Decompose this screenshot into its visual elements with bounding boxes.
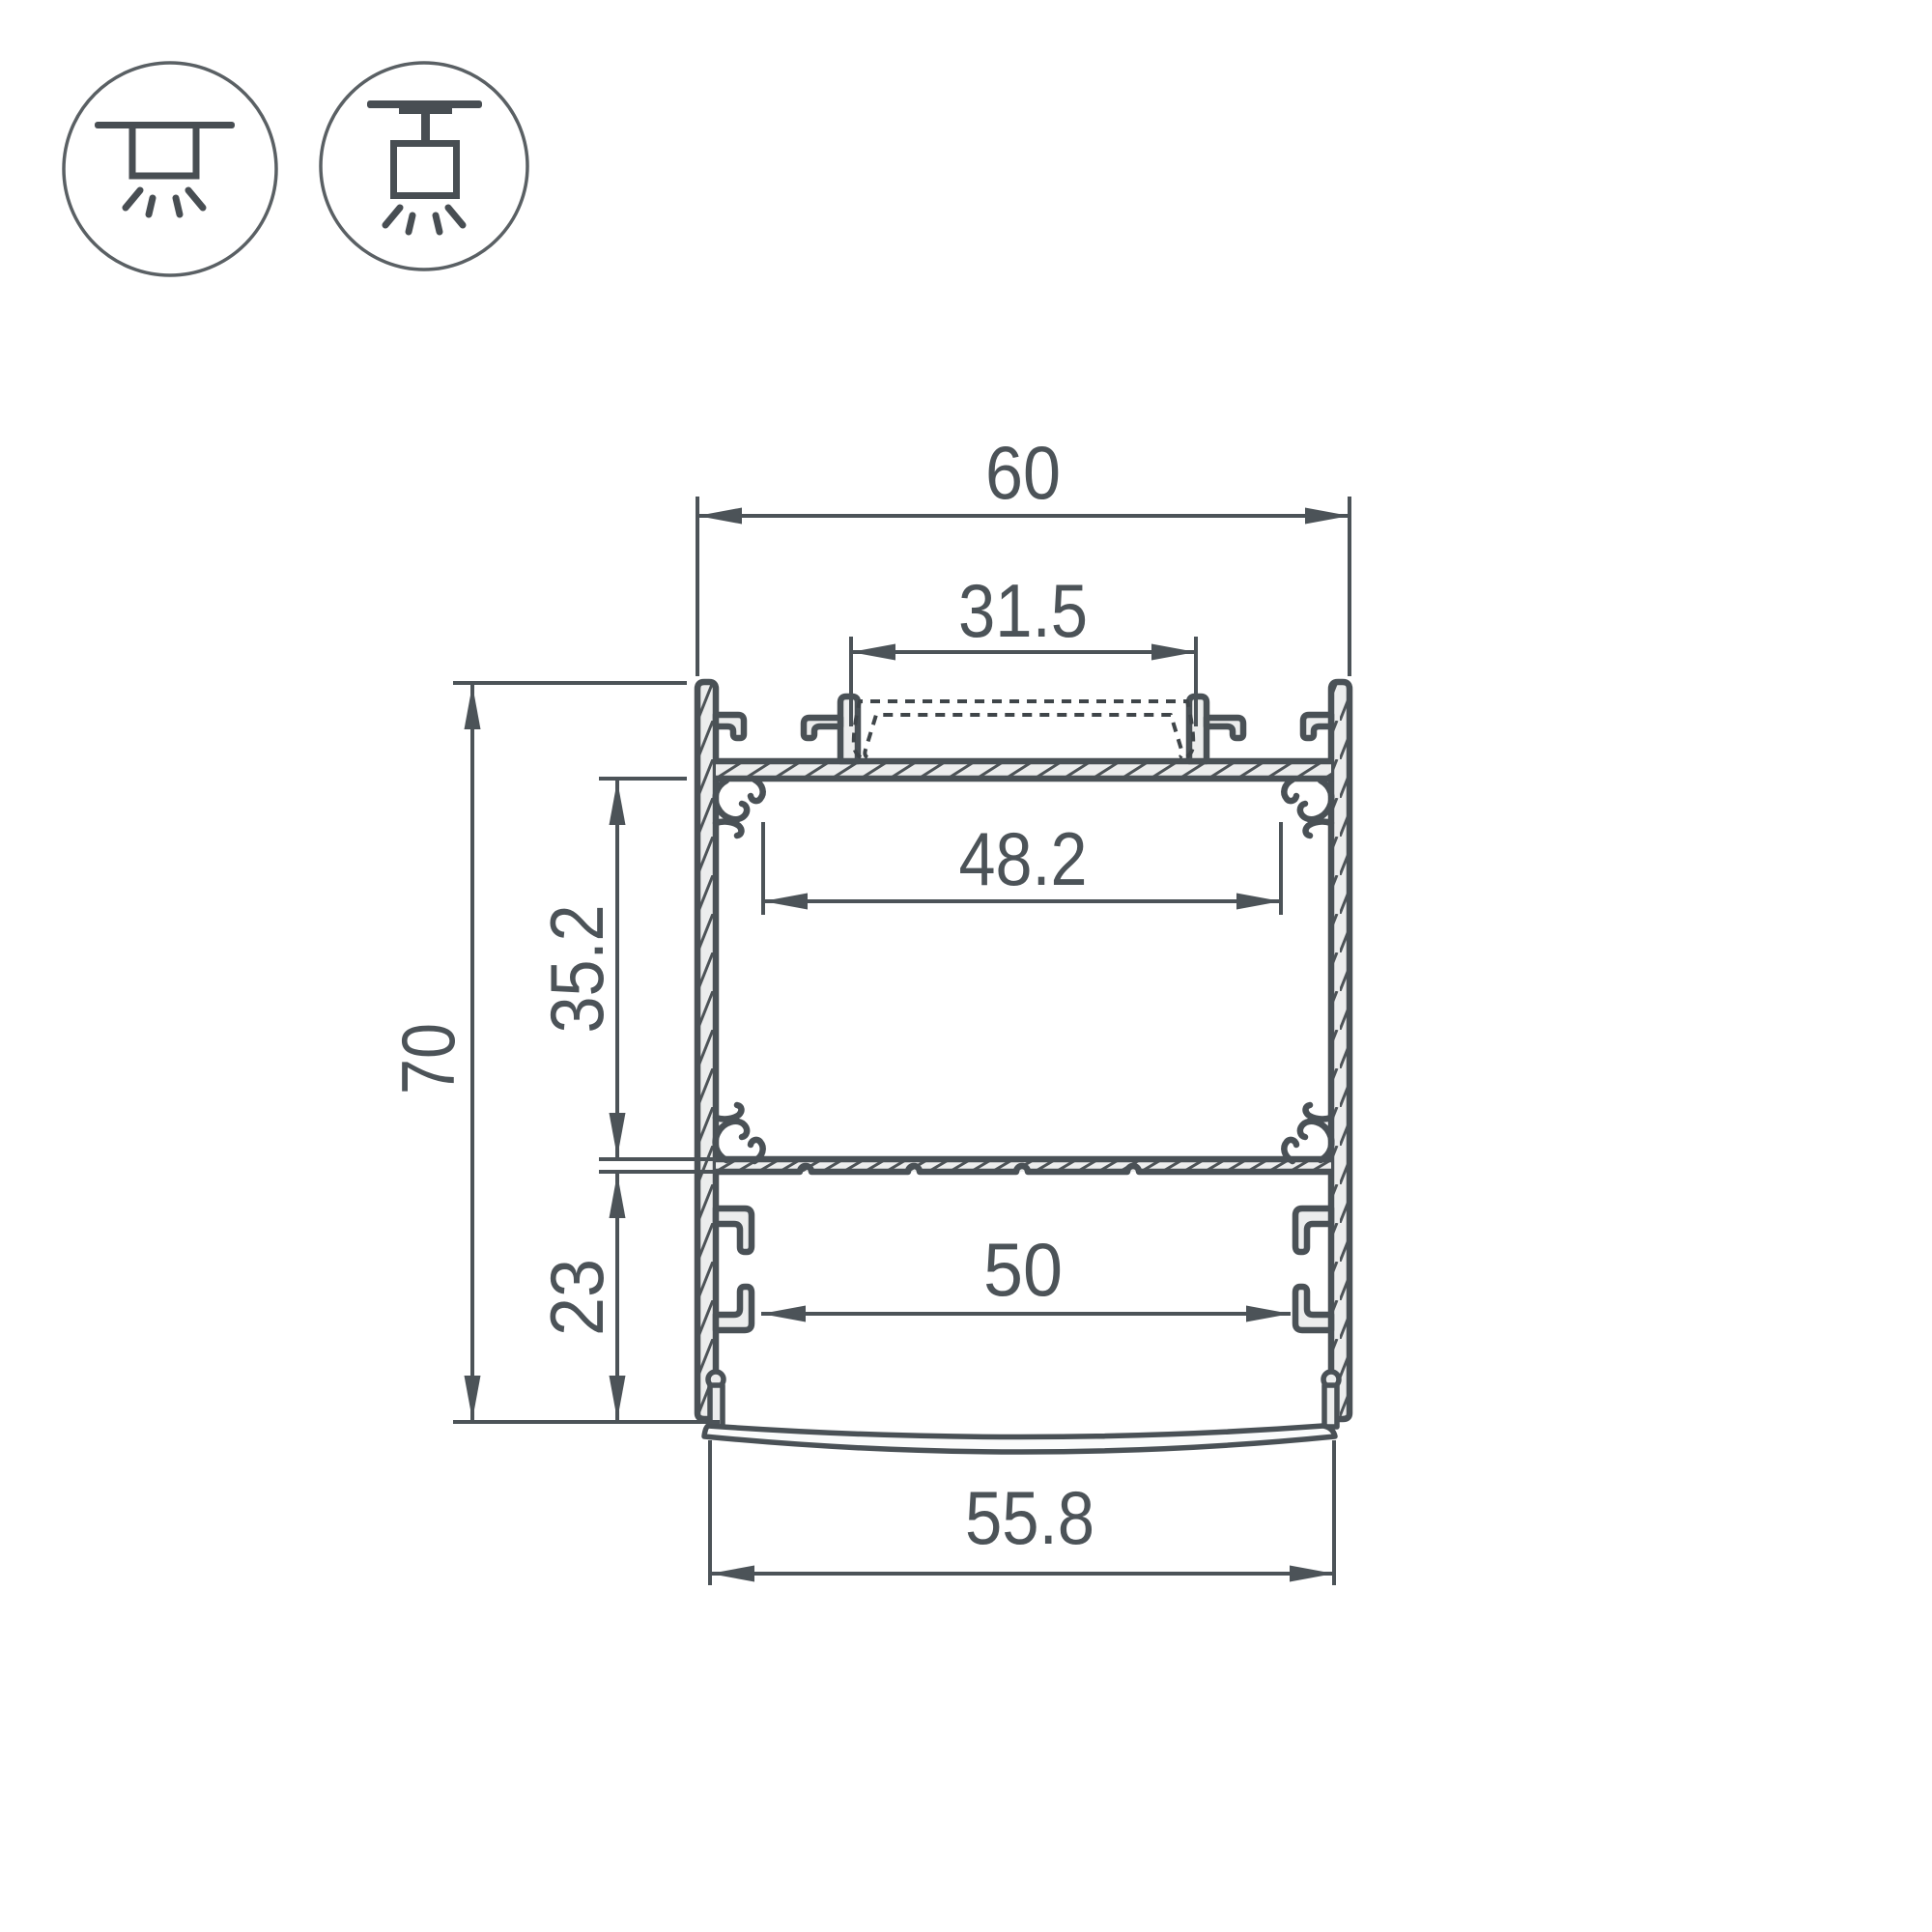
svg-text:35.2: 35.2: [534, 905, 619, 1034]
svg-text:60: 60: [985, 430, 1061, 515]
svg-text:50: 50: [983, 1227, 1063, 1312]
svg-text:55.8: 55.8: [965, 1475, 1094, 1560]
svg-text:31.5: 31.5: [958, 568, 1088, 653]
svg-text:70: 70: [385, 1023, 470, 1094]
svg-text:48.2: 48.2: [959, 816, 1088, 901]
svg-text:23: 23: [534, 1259, 619, 1336]
